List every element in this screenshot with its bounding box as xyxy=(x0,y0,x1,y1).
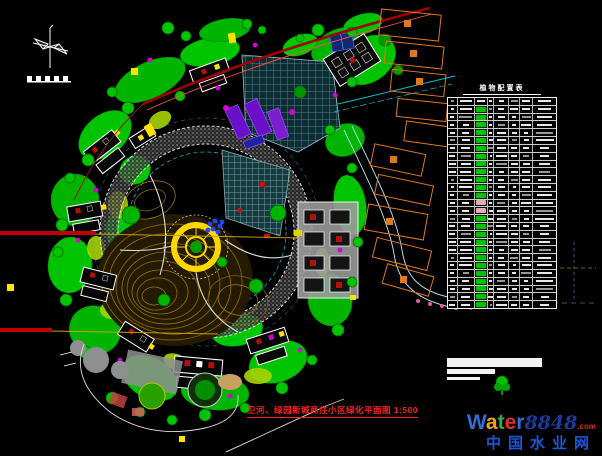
plant-table-cell xyxy=(519,286,532,293)
plant-table-cell xyxy=(532,200,556,207)
plant-table-cell xyxy=(457,246,474,253)
plant-table-cell xyxy=(508,293,519,300)
plant-table-cell xyxy=(474,145,487,152)
plant-table-cell xyxy=(457,161,474,168)
plant-table-cell xyxy=(519,278,532,285)
plant-table-cell xyxy=(493,215,508,222)
plant-table-cell xyxy=(508,106,519,113)
plant-table-cell xyxy=(519,145,532,152)
watermark-letter: a xyxy=(486,411,498,434)
plant-table-cell xyxy=(508,278,519,285)
plant-table-cell xyxy=(493,207,508,214)
plant-table-cell xyxy=(532,129,556,136)
plant-table-cell xyxy=(448,184,457,191)
plant-table-cell xyxy=(448,215,457,222)
plant-table-cell xyxy=(457,270,474,277)
plant-table-cell xyxy=(457,200,474,207)
plant-table-cell xyxy=(519,184,532,191)
plant-table-cell xyxy=(493,192,508,199)
plant-table-cell xyxy=(448,246,457,253)
plant-schedule-title: 植物配置表 xyxy=(463,83,541,95)
plant-table-cell xyxy=(493,301,508,308)
plant-table-cell xyxy=(519,161,532,168)
plant-table-cell xyxy=(493,145,508,152)
plant-table-cell xyxy=(448,98,457,105)
plant-table-row xyxy=(448,191,556,199)
plant-table-cell xyxy=(474,176,487,183)
plant-table-cell xyxy=(448,239,457,246)
plant-table-cell xyxy=(519,200,532,207)
plant-table-cell xyxy=(448,192,457,199)
plant-table-cell xyxy=(532,270,556,277)
watermark-letter: t xyxy=(498,411,505,434)
plant-table-cell xyxy=(519,262,532,269)
plant-table-cell xyxy=(448,168,457,175)
plant-table-cell xyxy=(519,129,532,136)
plant-table-cell xyxy=(457,145,474,152)
plant-table-row xyxy=(448,136,556,144)
plant-table-cell xyxy=(474,137,487,144)
plant-table-cell xyxy=(532,168,556,175)
plant-table-row xyxy=(448,261,556,269)
plant-table-cell xyxy=(519,270,532,277)
plant-table-cell xyxy=(532,207,556,214)
plant-table-row xyxy=(448,285,556,293)
plant-table-cell xyxy=(493,286,508,293)
plant-table-cell xyxy=(532,254,556,261)
plant-table-header-row xyxy=(448,98,556,105)
plant-table-cell xyxy=(493,114,508,121)
plant-table-cell xyxy=(457,223,474,230)
yellow-block-marker xyxy=(7,284,14,291)
plant-table-cell xyxy=(493,129,508,136)
plant-table-row xyxy=(448,238,556,246)
plant-table-cell xyxy=(532,176,556,183)
notes-bar xyxy=(447,358,542,367)
plant-table-row xyxy=(448,277,556,285)
plant-table-cell xyxy=(474,200,487,207)
plant-table-cell xyxy=(508,215,519,222)
plant-table-cell xyxy=(532,153,556,160)
plant-table-cell xyxy=(474,184,487,191)
plant-table-cell xyxy=(474,293,487,300)
plant-table-cell xyxy=(532,262,556,269)
plant-table-cell xyxy=(532,114,556,121)
plant-table-row xyxy=(448,199,556,207)
plant-table-cell xyxy=(532,215,556,222)
plant-table-cell xyxy=(519,121,532,128)
plant-table-cell xyxy=(508,207,519,214)
plant-table-cell xyxy=(532,98,556,105)
plant-table-cell xyxy=(474,270,487,277)
plant-table-cell xyxy=(448,200,457,207)
plant-table-cell xyxy=(508,168,519,175)
plant-table-cell xyxy=(448,286,457,293)
plant-table-cell xyxy=(532,286,556,293)
plant-table-cell xyxy=(448,278,457,285)
plant-table-cell xyxy=(474,301,487,308)
plant-table-cell xyxy=(508,239,519,246)
plant-table-cell xyxy=(457,254,474,261)
plant-table-row xyxy=(448,300,556,308)
plant-table-cell xyxy=(448,153,457,160)
plant-table-cell xyxy=(457,215,474,222)
plant-table-cell xyxy=(508,200,519,207)
plant-table-cell xyxy=(508,161,519,168)
plant-table-cell xyxy=(519,176,532,183)
plant-table-row xyxy=(448,214,556,222)
plant-table-row xyxy=(448,292,556,300)
plant-table-cell xyxy=(448,223,457,230)
plant-table-cell xyxy=(448,121,457,128)
plant-table-cell xyxy=(493,121,508,128)
plant-table-cell xyxy=(474,262,487,269)
plant-table-cell xyxy=(532,246,556,253)
plant-table-cell xyxy=(474,231,487,238)
plant-table-cell xyxy=(474,98,487,105)
plant-table-cell xyxy=(519,153,532,160)
watermark-letter: W xyxy=(467,411,486,434)
plant-table-row xyxy=(448,206,556,214)
plant-table-cell xyxy=(532,121,556,128)
plant-table-cell xyxy=(493,184,508,191)
plant-table-cell xyxy=(493,278,508,285)
plant-table-cell xyxy=(532,239,556,246)
plant-table-cell xyxy=(519,301,532,308)
plant-table-cell xyxy=(508,262,519,269)
plant-table-cell xyxy=(519,246,532,253)
plant-table-cell xyxy=(457,207,474,214)
plant-table-cell xyxy=(519,254,532,261)
plant-table-row xyxy=(448,120,556,128)
notes-bar xyxy=(447,369,495,374)
plant-table-cell xyxy=(508,246,519,253)
plant-table-cell xyxy=(448,176,457,183)
plant-table-cell xyxy=(508,137,519,144)
plant-table-cell xyxy=(474,223,487,230)
plant-table-cell xyxy=(448,145,457,152)
plant-table-cell xyxy=(532,192,556,199)
plant-table-cell xyxy=(519,114,532,121)
plant-table-cell xyxy=(519,106,532,113)
plant-table-cell xyxy=(532,278,556,285)
plant-table-cell xyxy=(457,114,474,121)
plant-table-cell xyxy=(457,106,474,113)
southwest-garden xyxy=(60,340,242,432)
north-arrow-icon xyxy=(33,25,68,68)
plant-table-cell xyxy=(457,293,474,300)
plant-table-cell xyxy=(508,184,519,191)
plant-table-cell xyxy=(532,106,556,113)
plant-table-cell xyxy=(474,121,487,128)
plant-table-cell xyxy=(457,231,474,238)
plant-table-row xyxy=(448,160,556,168)
plant-table-row xyxy=(448,183,556,191)
plant-table-cell xyxy=(532,301,556,308)
plant-table-cell xyxy=(532,231,556,238)
plant-table-cell xyxy=(448,129,457,136)
cad-drawing-viewport: 植物配置表 卫河、绿园新城商住小区绿化平面图 1:500 Water8848.c… xyxy=(0,0,602,456)
plant-table-cell xyxy=(532,161,556,168)
drawing-title: 卫河、绿园新城商住小区绿化平面图 1:500 xyxy=(247,404,418,418)
plant-table-cell xyxy=(508,192,519,199)
plant-table-cell xyxy=(457,129,474,136)
plant-table-cell xyxy=(493,246,508,253)
plant-table-row xyxy=(448,245,556,253)
plant-table-cell xyxy=(493,153,508,160)
plant-table-row xyxy=(448,105,556,113)
plant-table-cell xyxy=(519,293,532,300)
plant-table-cell xyxy=(493,200,508,207)
plant-table-cell xyxy=(519,215,532,222)
plant-table-cell xyxy=(508,231,519,238)
yellow-block-marker xyxy=(350,295,356,300)
watermark-brand-word: Water xyxy=(467,416,525,433)
plant-table-cell xyxy=(457,278,474,285)
plant-table-cell xyxy=(532,293,556,300)
plant-table-cell xyxy=(474,278,487,285)
yellow-block-marker xyxy=(179,436,185,442)
plant-table-row xyxy=(448,253,556,261)
watermark-logo: Water8848.com 中国水业网 xyxy=(467,412,596,451)
plant-table-row xyxy=(448,230,556,238)
watermark-number: 8848 xyxy=(524,412,577,434)
plant-table-cell xyxy=(519,231,532,238)
plant-table-cell xyxy=(532,184,556,191)
plant-table-cell xyxy=(474,168,487,175)
plant-table-cell xyxy=(448,270,457,277)
plant-table-cell xyxy=(474,153,487,160)
plant-table-cell xyxy=(457,184,474,191)
plant-table-cell xyxy=(493,176,508,183)
plant-table-cell xyxy=(448,293,457,300)
plant-table-cell xyxy=(508,114,519,121)
tree-symbol-icon xyxy=(493,375,511,395)
plant-table-cell xyxy=(457,286,474,293)
plant-table-cell xyxy=(493,293,508,300)
plant-table-cell xyxy=(474,207,487,214)
plant-table-cell xyxy=(493,161,508,168)
plant-table-cell xyxy=(474,215,487,222)
plant-table-cell xyxy=(457,168,474,175)
notes-bar xyxy=(447,377,480,380)
watermark-subtitle: 中国水业网 xyxy=(467,436,596,451)
plant-table-cell xyxy=(493,270,508,277)
plant-table-cell xyxy=(508,121,519,128)
plant-table-cell xyxy=(493,254,508,261)
watermark-letter: e xyxy=(505,411,517,434)
plant-table-cell xyxy=(457,239,474,246)
plant-table-cell xyxy=(519,207,532,214)
plant-table-row xyxy=(448,167,556,175)
plant-table-row xyxy=(448,175,556,183)
plant-table-cell xyxy=(457,301,474,308)
scale-bar xyxy=(27,76,71,83)
plant-table-cell xyxy=(457,192,474,199)
plant-schedule: 植物配置表 xyxy=(447,83,557,309)
plant-table-cell xyxy=(457,262,474,269)
plant-table-cell xyxy=(519,239,532,246)
plant-table-cell xyxy=(474,192,487,199)
plant-table-row xyxy=(448,128,556,136)
yellow-plaza xyxy=(174,225,218,269)
plant-table-cell xyxy=(532,137,556,144)
plant-table-cell xyxy=(474,254,487,261)
plant-table-cell xyxy=(448,301,457,308)
plant-table-cell xyxy=(508,153,519,160)
plant-table-cell xyxy=(519,223,532,230)
plant-table-row xyxy=(448,222,556,230)
plant-table-cell xyxy=(519,137,532,144)
plant-schedule-table xyxy=(447,97,557,309)
plant-table-cell xyxy=(508,301,519,308)
plant-table-cell xyxy=(493,106,508,113)
plant-table-cell xyxy=(448,254,457,261)
watermark-tld: .com xyxy=(577,422,596,431)
plant-table-cell xyxy=(519,192,532,199)
plant-table-cell xyxy=(457,98,474,105)
plant-table-cell xyxy=(457,121,474,128)
plant-table-cell xyxy=(448,262,457,269)
plant-table-cell xyxy=(508,145,519,152)
plant-table-cell xyxy=(508,176,519,183)
plant-table-cell xyxy=(532,145,556,152)
plant-table-cell xyxy=(448,106,457,113)
plant-table-cell xyxy=(508,129,519,136)
plant-table-cell xyxy=(519,168,532,175)
plant-table-cell xyxy=(474,246,487,253)
plant-table-row xyxy=(448,269,556,277)
plant-table-cell xyxy=(474,161,487,168)
plant-table-cell xyxy=(508,286,519,293)
plant-table-cell xyxy=(519,98,532,105)
plant-table-cell xyxy=(508,98,519,105)
plant-table-row xyxy=(448,144,556,152)
plant-table-cell xyxy=(474,106,487,113)
plant-table-cell xyxy=(532,223,556,230)
plant-table-cell xyxy=(474,239,487,246)
plant-table-cell xyxy=(448,231,457,238)
plant-table-cell xyxy=(457,153,474,160)
plant-table-cell xyxy=(508,254,519,261)
plant-table-cell xyxy=(474,286,487,293)
plant-table-cell xyxy=(493,231,508,238)
plant-table-cell xyxy=(493,239,508,246)
yellow-block-marker xyxy=(131,68,138,75)
plant-table-cell xyxy=(457,176,474,183)
plant-table-cell xyxy=(474,114,487,121)
plant-table-cell xyxy=(448,114,457,121)
plant-table-cell xyxy=(457,137,474,144)
plant-table-cell xyxy=(493,262,508,269)
plant-table-cell xyxy=(448,161,457,168)
plant-table-cell xyxy=(493,98,508,105)
plant-table-cell xyxy=(508,270,519,277)
plant-table-cell xyxy=(474,129,487,136)
plant-table-cell xyxy=(493,223,508,230)
plant-table-cell xyxy=(493,137,508,144)
plant-table-cell xyxy=(508,223,519,230)
plant-table-row xyxy=(448,113,556,121)
plant-table-cell xyxy=(448,137,457,144)
plant-table-row xyxy=(448,152,556,160)
plant-table-cell xyxy=(448,207,457,214)
plant-table-cell xyxy=(493,168,508,175)
